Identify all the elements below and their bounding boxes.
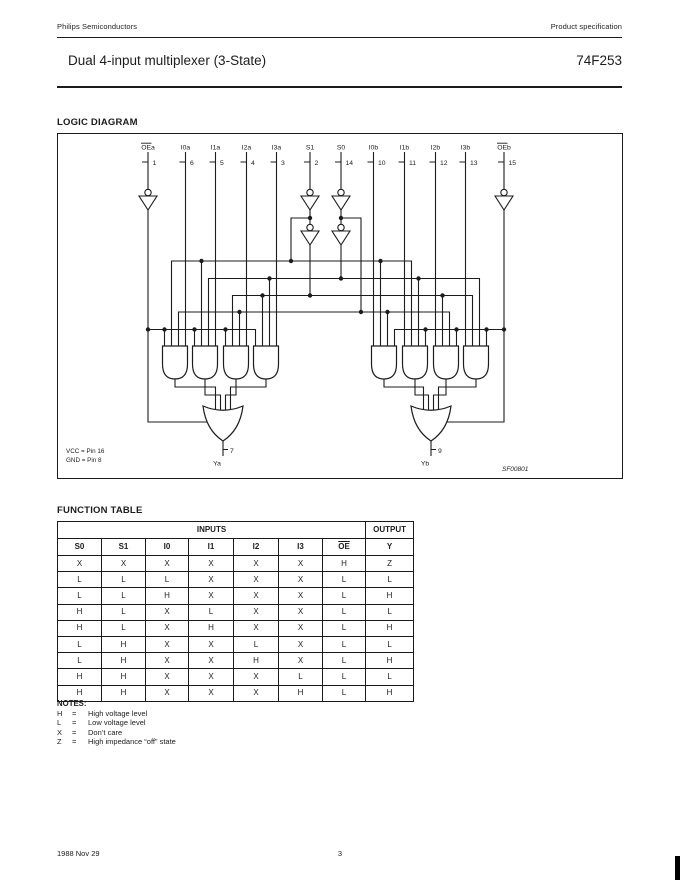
- input-pin-1: 1: [153, 160, 157, 167]
- table-cell: X: [146, 653, 189, 669]
- table-cell: H: [58, 669, 102, 685]
- junction-dot: [308, 293, 312, 297]
- input-label-I0a: I0a: [181, 145, 191, 152]
- table-row: HLXHXXLH: [58, 620, 414, 636]
- diagram-labels: OEa1I0a6I1a5I2a4I3a3S12S014I0b10I1b11I2b…: [141, 143, 516, 467]
- and-gate-icon: [372, 346, 397, 379]
- or-gates: [203, 406, 451, 441]
- junction-dot: [454, 327, 458, 331]
- table-cell: H: [58, 620, 102, 636]
- note-equals: =: [72, 709, 88, 719]
- wires-data-inputs: [186, 152, 466, 346]
- inverter-gates: [139, 189, 513, 245]
- input-pin-15: 15: [509, 160, 517, 167]
- junction-dot: [339, 276, 343, 280]
- input-pin-13: 13: [470, 160, 478, 167]
- output-label-Yb: Yb: [421, 461, 430, 468]
- table-row: LLLXXXLL: [58, 572, 414, 588]
- junction-dot: [423, 327, 427, 331]
- input-label-I1a: I1a: [211, 145, 221, 152]
- input-label-I0b: I0b: [369, 145, 379, 152]
- junction-dot: [260, 293, 264, 297]
- table-column-header-i3: I3: [279, 539, 323, 556]
- junction-dot: [162, 327, 166, 331]
- table-cell: X: [279, 556, 323, 572]
- logic-diagram-box: OEa1I0a6I1a5I2a4I3a3S12S014I0b10I1b11I2b…: [57, 133, 623, 479]
- table-column-header-s0: S0: [58, 539, 102, 556]
- input-pin-2: 2: [315, 160, 319, 167]
- table-cell: X: [279, 620, 323, 636]
- input-pin-5: 5: [220, 160, 224, 167]
- table-cell: X: [189, 572, 234, 588]
- table-cell: L: [323, 636, 366, 652]
- junction-dot: [385, 310, 389, 314]
- table-cell: X: [279, 604, 323, 620]
- table-group-header-output: OUTPUT: [366, 522, 414, 539]
- table-cell: L: [323, 588, 366, 604]
- table-cell: H: [366, 620, 414, 636]
- junction-dot: [378, 259, 382, 263]
- junction-dot: [223, 327, 227, 331]
- table-cell: L: [323, 653, 366, 669]
- input-label-I2a: I2a: [242, 145, 252, 152]
- function-table-heading: FUNCTION TABLE: [57, 505, 142, 516]
- input-label-OEb: OEb: [497, 145, 511, 152]
- junction-dot: [339, 216, 343, 220]
- table-cell: X: [279, 636, 323, 652]
- junction-dot: [237, 310, 241, 314]
- vcc-note: VCC = Pin 16: [66, 448, 105, 455]
- logic-diagram-figure: OEa1I0a6I1a5I2a4I3a3S12S014I0b10I1b11I2b…: [58, 134, 622, 478]
- table-cell: X: [189, 588, 234, 604]
- title-rule: [57, 86, 622, 88]
- inverter-triangle-icon: [495, 196, 513, 210]
- input-pin-10: 10: [378, 160, 386, 167]
- table-cell: L: [323, 620, 366, 636]
- junction-dot: [146, 327, 150, 331]
- junction-dot: [440, 293, 444, 297]
- inverter-bubble-icon: [145, 189, 151, 195]
- and-gate-icon: [254, 346, 279, 379]
- datasheet-page: Philips Semiconductors Product specifica…: [0, 0, 680, 880]
- input-pin-12: 12: [440, 160, 448, 167]
- table-cell: L: [102, 620, 146, 636]
- or-gate-icon: [203, 406, 243, 441]
- note-symbol: L: [57, 718, 72, 728]
- table-cell: H: [102, 636, 146, 652]
- table-cell: L: [58, 588, 102, 604]
- junction-dot: [308, 216, 312, 220]
- table-column-header-s1: S1: [102, 539, 146, 556]
- table-cell: H: [234, 653, 279, 669]
- input-label-I2b: I2b: [431, 145, 441, 152]
- table-cell: L: [58, 653, 102, 669]
- table-cell: X: [146, 620, 189, 636]
- and-gate-icon: [434, 346, 459, 379]
- junction-dot: [416, 276, 420, 280]
- logic-diagram-heading: LOGIC DIAGRAM: [57, 117, 138, 128]
- notes-list: H=High voltage levelL=Low voltage levelX…: [57, 709, 357, 747]
- table-cell: L: [366, 669, 414, 685]
- table-cell: L: [234, 636, 279, 652]
- output-pin-9: 9: [438, 448, 442, 455]
- table-cell: L: [102, 604, 146, 620]
- note-symbol: Z: [57, 737, 72, 747]
- table-cell: X: [189, 556, 234, 572]
- table-cell: X: [146, 669, 189, 685]
- notes-heading: NOTES:: [57, 699, 357, 709]
- table-cell: L: [146, 572, 189, 588]
- table-column-header-i2: I2: [234, 539, 279, 556]
- table-cell: H: [366, 685, 414, 701]
- junction-dots: [146, 216, 506, 332]
- and-gate-icon: [224, 346, 249, 379]
- function-table-body: XXXXXXHZLLLXXXLLLLHXXXLHHLXLXXLLHLXHXXLH…: [58, 556, 414, 702]
- table-row: LHXXHXLH: [58, 653, 414, 669]
- table-cell: X: [189, 669, 234, 685]
- table-cell: X: [234, 588, 279, 604]
- table-cell: L: [58, 572, 102, 588]
- table-cell: H: [366, 653, 414, 669]
- table-row: XXXXXXHZ: [58, 556, 414, 572]
- note-equals: =: [72, 728, 88, 738]
- note-definition: High voltage level: [88, 709, 147, 719]
- table-cell: L: [366, 636, 414, 652]
- table-row: HHXXXLLL: [58, 669, 414, 685]
- notes-block: NOTES: H=High voltage levelL=Low voltage…: [57, 699, 357, 747]
- table-cell: X: [279, 588, 323, 604]
- table-cell: L: [323, 572, 366, 588]
- gnd-note: GND = Pin 8: [66, 457, 102, 464]
- input-pin-3: 3: [281, 160, 285, 167]
- input-label-I3b: I3b: [461, 145, 471, 152]
- note-equals: =: [72, 718, 88, 728]
- table-column-header-i1: I1: [189, 539, 234, 556]
- note-symbol: X: [57, 728, 72, 738]
- table-column-header-oe: OE: [323, 539, 366, 556]
- header-right: Product specification: [322, 22, 622, 31]
- table-cell: X: [234, 669, 279, 685]
- and-gate-icon: [193, 346, 218, 379]
- table-cell: X: [189, 636, 234, 652]
- table-cell: Z: [366, 556, 414, 572]
- table-cell: X: [58, 556, 102, 572]
- or-gate-icon: [411, 406, 451, 441]
- junction-dot: [484, 327, 488, 331]
- table-cell: H: [58, 604, 102, 620]
- note-equals: =: [72, 737, 88, 747]
- input-label-S0: S0: [337, 145, 346, 152]
- function-table: INPUTSOUTPUTS0S1I0I1I2I3OEY XXXXXXHZLLLX…: [57, 521, 414, 702]
- page-title: Dual 4-input multiplexer (3-State): [68, 53, 266, 68]
- input-pin-14: 14: [346, 160, 354, 167]
- inverter-triangle-icon: [139, 196, 157, 210]
- table-group-header-inputs: INPUTS: [58, 522, 366, 539]
- output-label-Ya: Ya: [213, 461, 221, 468]
- table-row: LLHXXXLH: [58, 588, 414, 604]
- table-cell: H: [146, 588, 189, 604]
- table-cell: L: [279, 669, 323, 685]
- table-cell: X: [146, 604, 189, 620]
- table-cell: L: [189, 604, 234, 620]
- table-cell: L: [58, 636, 102, 652]
- scan-artifact: [675, 856, 680, 880]
- input-label-S1: S1: [306, 145, 315, 152]
- table-cell: X: [234, 604, 279, 620]
- table-cell: X: [146, 636, 189, 652]
- header-rule: [57, 37, 622, 38]
- footer-page-number: 3: [0, 849, 680, 858]
- and-gate-icon: [403, 346, 428, 379]
- table-cell: H: [102, 653, 146, 669]
- note-item: L=Low voltage level: [57, 718, 357, 728]
- note-symbol: H: [57, 709, 72, 719]
- input-label-I1b: I1b: [400, 145, 410, 152]
- table-cell: H: [366, 588, 414, 604]
- output-pin-7: 7: [230, 448, 234, 455]
- note-definition: Don’t care: [88, 728, 122, 738]
- and-gates: [163, 346, 489, 379]
- inverter-bubble-icon: [307, 189, 313, 195]
- note-definition: High impedance “off” state: [88, 737, 176, 747]
- table-cell: L: [102, 588, 146, 604]
- inverter-bubble-icon: [338, 189, 344, 195]
- input-pin-4: 4: [251, 160, 255, 167]
- junction-dot: [289, 259, 293, 263]
- table-cell: H: [102, 669, 146, 685]
- inverter-bubble-icon: [307, 224, 313, 230]
- inverter-bubble-icon: [338, 224, 344, 230]
- table-cell: L: [323, 669, 366, 685]
- note-item: X=Don’t care: [57, 728, 357, 738]
- table-column-header-y: Y: [366, 539, 414, 556]
- table-cell: H: [189, 620, 234, 636]
- and-gate-icon: [464, 346, 489, 379]
- table-column-header-i0: I0: [146, 539, 189, 556]
- table-row: LHXXLXLL: [58, 636, 414, 652]
- input-pin-6: 6: [190, 160, 194, 167]
- table-cell: L: [102, 572, 146, 588]
- inverter-bubble-icon: [501, 189, 507, 195]
- table-cell: X: [279, 653, 323, 669]
- wires-select-bus: [148, 261, 504, 346]
- table-cell: X: [234, 572, 279, 588]
- input-pin-11: 11: [409, 160, 416, 167]
- function-table-head: INPUTSOUTPUTS0S1I0I1I2I3OEY: [58, 522, 414, 556]
- and-gate-icon: [163, 346, 188, 379]
- inverter-triangle-icon: [332, 196, 350, 210]
- junction-dot: [199, 259, 203, 263]
- input-label-OEa: OEa: [141, 145, 155, 152]
- note-item: H=High voltage level: [57, 709, 357, 719]
- table-cell: X: [234, 620, 279, 636]
- table-cell: L: [323, 604, 366, 620]
- table-cell: X: [189, 653, 234, 669]
- junction-dot: [359, 310, 363, 314]
- inverter-triangle-icon: [301, 231, 319, 245]
- table-cell: L: [366, 572, 414, 588]
- table-cell: X: [146, 556, 189, 572]
- table-row: HLXLXXLL: [58, 604, 414, 620]
- note-item: Z=High impedance “off” state: [57, 737, 357, 747]
- figure-code: SF00801: [502, 466, 529, 473]
- part-number: 74F253: [322, 53, 622, 68]
- table-cell: X: [279, 572, 323, 588]
- junction-dot: [267, 276, 271, 280]
- table-cell: X: [102, 556, 146, 572]
- junction-dot: [502, 327, 506, 331]
- input-label-I3a: I3a: [272, 145, 282, 152]
- note-definition: Low voltage level: [88, 718, 146, 728]
- inverter-triangle-icon: [301, 196, 319, 210]
- table-cell: L: [366, 604, 414, 620]
- header-left: Philips Semiconductors: [57, 22, 137, 31]
- inverter-triangle-icon: [332, 231, 350, 245]
- table-cell: H: [323, 556, 366, 572]
- junction-dot: [192, 327, 196, 331]
- table-cell: X: [234, 556, 279, 572]
